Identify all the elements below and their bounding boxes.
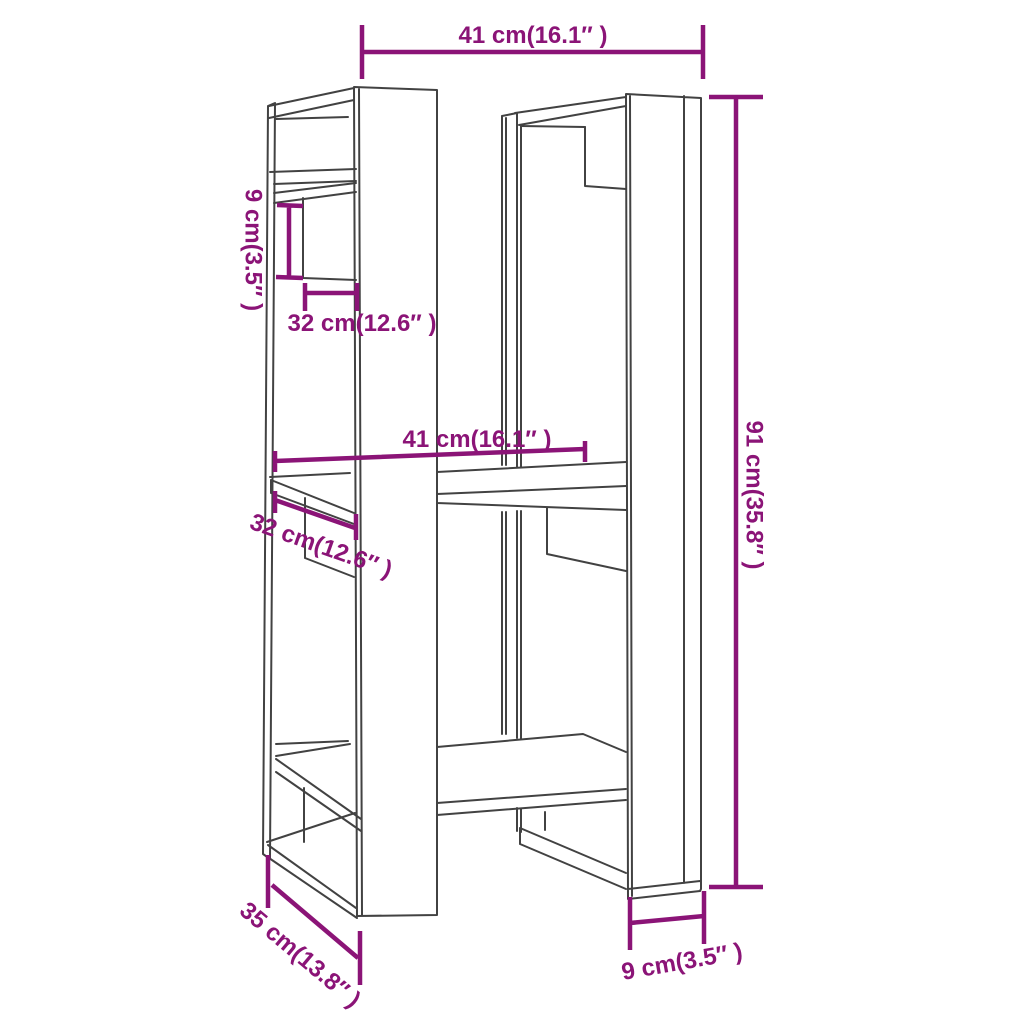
left-second-shelf-backboard	[303, 198, 356, 280]
dimension-inner-width: 41 cm(16.1″ )	[275, 426, 585, 472]
dimension-shelf-depth-lower: 32 cm(12.6″ )	[246, 491, 395, 584]
center-panel	[354, 87, 437, 916]
dimension-line-base-board-width	[630, 891, 704, 950]
dimension-label-inner-width: 41 cm(16.1″ )	[403, 426, 552, 453]
dimension-line-shelf-depth-upper	[305, 283, 357, 311]
right-top-shelf-backboard	[585, 127, 626, 189]
left-top-shelf	[269, 88, 354, 119]
dimension-top-width: 41 cm(16.1″ )	[362, 22, 703, 79]
dimension-board-height: 9 cm(3.5″ )	[240, 189, 304, 311]
dimension-label-board-height: 9 cm(3.5″ )	[240, 189, 267, 311]
dimension-label-shelf-depth-lower: 32 cm(12.6″ )	[246, 508, 395, 583]
dimension-label-overall-height: 91 cm(35.8″ )	[741, 421, 768, 570]
dimension-label-shelf-depth-upper: 32 cm(12.6″ )	[288, 310, 437, 337]
bookshelf-dimension-diagram: 41 cm(16.1″ ) 91 cm(35.8″ ) 9 cm(3.5″ ) …	[0, 0, 1024, 1024]
left-second-shelf	[270, 169, 356, 203]
dimension-label-total-depth: 35 cm(13.8″ )	[234, 897, 365, 1013]
furniture-outline	[263, 87, 701, 918]
product-image: 41 cm(16.1″ ) 91 cm(35.8″ ) 9 cm(3.5″ ) …	[0, 0, 1024, 1024]
left-middle-shelf	[270, 473, 354, 524]
dimension-overall-height: 91 cm(35.8″ )	[709, 97, 768, 887]
middle-upright	[502, 113, 545, 832]
bottom-shelf	[437, 734, 626, 815]
right-side-panel	[626, 94, 701, 899]
left-bottom-shelf	[276, 741, 350, 756]
right-top-shelf	[515, 97, 626, 127]
middle-shelf	[437, 462, 626, 510]
dimension-shelf-depth-upper: 32 cm(12.6″ )	[288, 283, 437, 337]
dimension-base-board-width: 9 cm(3.5″ )	[619, 891, 744, 986]
dimension-label-base-board-width: 9 cm(3.5″ )	[619, 938, 744, 986]
dimension-label-top-width: 41 cm(16.1″ )	[459, 22, 608, 49]
dimension-line-board-height	[276, 205, 303, 278]
middle-shelf-backboard	[547, 508, 626, 571]
right-base-frame	[520, 828, 626, 889]
